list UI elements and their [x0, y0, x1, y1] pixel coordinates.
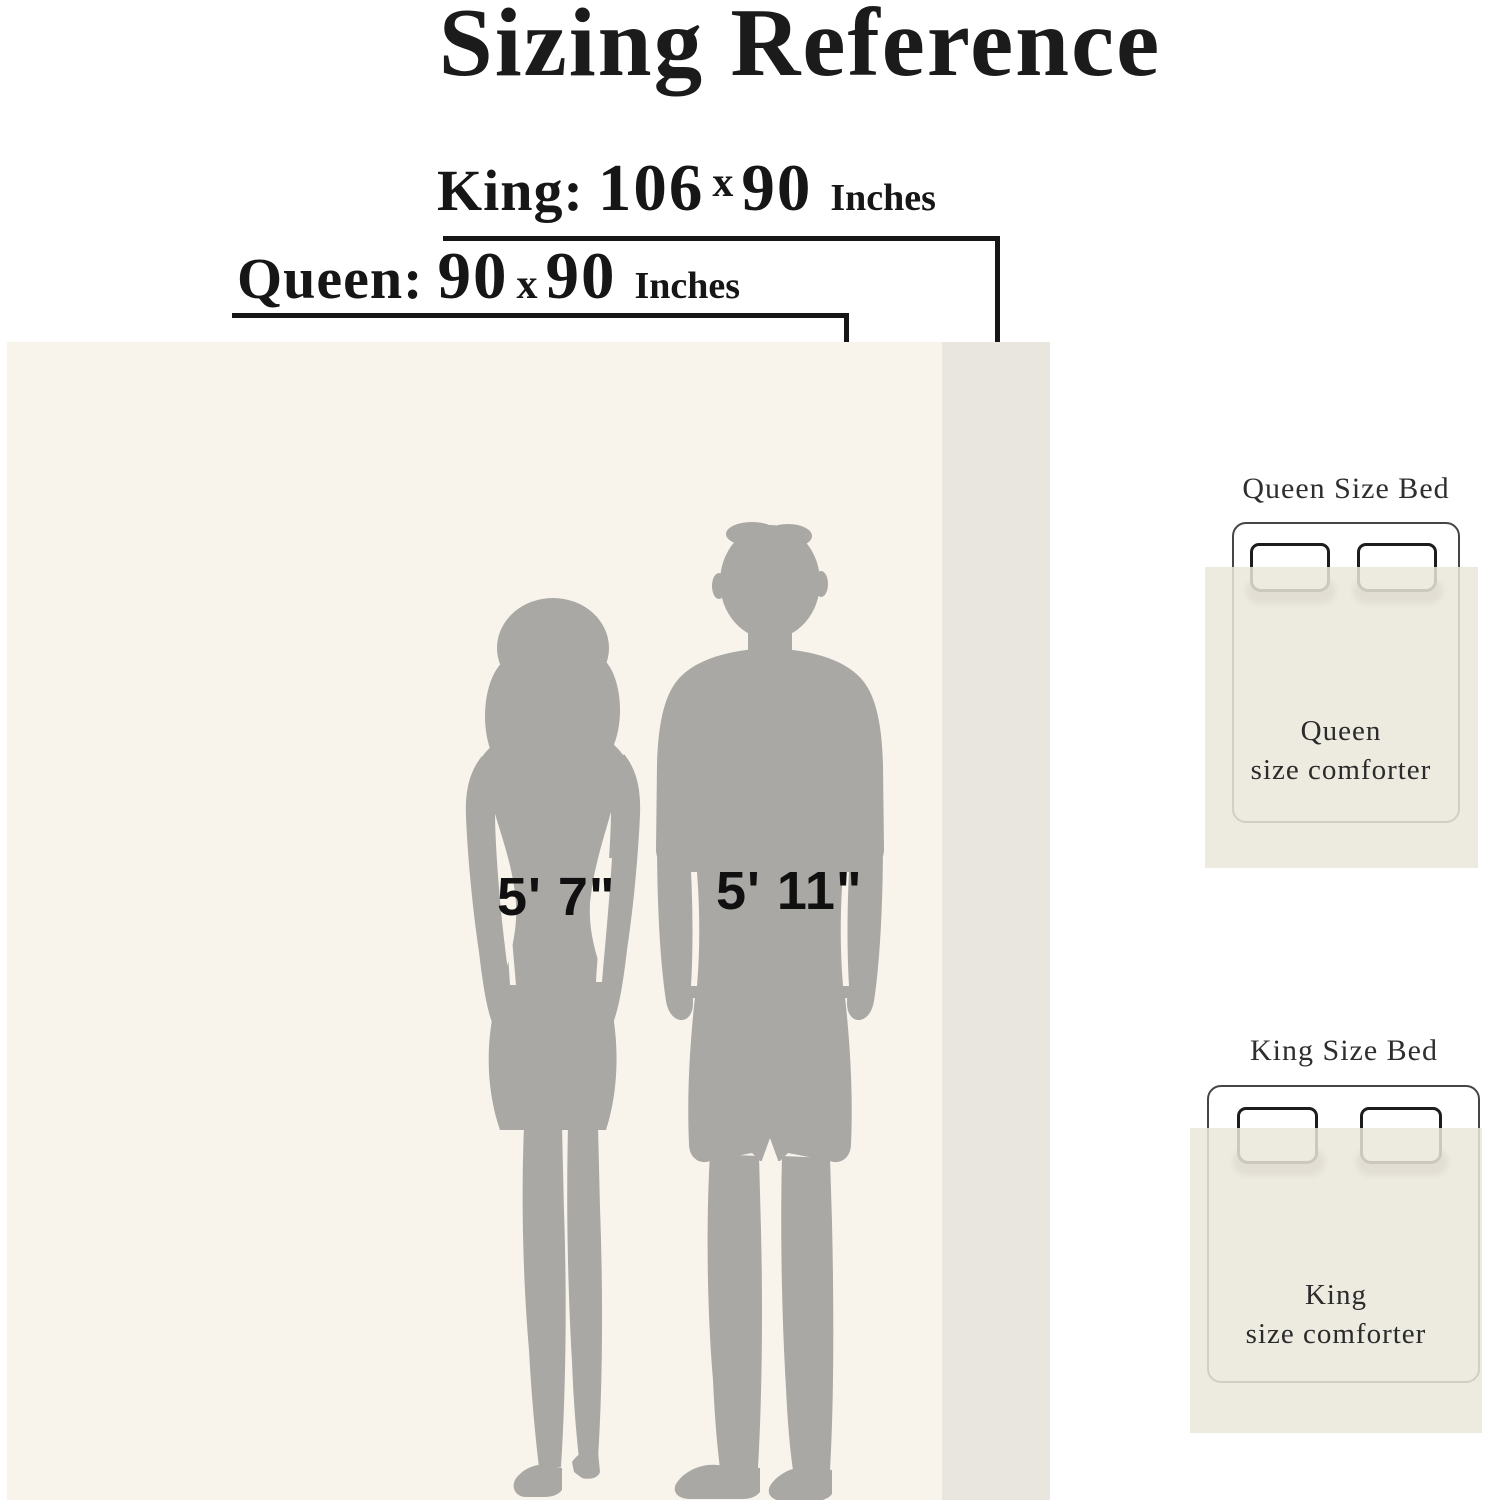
king-bracket-line	[443, 236, 1000, 241]
king-comforter-line2: size comforter	[1246, 1315, 1427, 1354]
king-bed-title: King Size Bed	[1250, 1034, 1438, 1068]
woman-silhouette	[466, 598, 640, 1497]
queen-size-name: Queen:	[237, 245, 423, 312]
man-height-label: 5' 11"	[716, 860, 863, 922]
queen-comforter-line2: size comforter	[1251, 751, 1432, 790]
king-size-name: King:	[437, 157, 584, 224]
king-multiply-sign: x	[712, 159, 733, 207]
king-height-value: 90	[741, 150, 812, 227]
man-silhouette	[656, 522, 884, 1500]
queen-comforter-line1: Queen	[1251, 712, 1432, 751]
queen-size-label: Queen: 90 x 90 Inches	[237, 238, 740, 315]
king-size-label: King: 106 x 90 Inches	[437, 150, 936, 227]
queen-width-value: 90	[437, 238, 508, 315]
king-unit-label: Inches	[830, 176, 936, 220]
queen-bracket-drop-line	[844, 313, 849, 344]
king-comforter-label: King size comforter	[1246, 1276, 1427, 1354]
queen-height-value: 90	[545, 238, 616, 315]
queen-multiply-sign: x	[516, 261, 537, 309]
king-bracket-drop-line	[995, 236, 1000, 344]
king-comforter-line1: King	[1246, 1276, 1427, 1315]
woman-height-label: 5' 7"	[497, 866, 616, 928]
queen-comforter-label: Queen size comforter	[1251, 712, 1432, 790]
people-silhouettes	[420, 520, 950, 1500]
king-width-value: 106	[598, 150, 705, 227]
king-comforter-extension-panel	[942, 342, 1050, 1500]
sizing-reference-infographic: Sizing Reference King: 106 x 90 Inches Q…	[0, 0, 1500, 1500]
queen-bracket-line	[232, 313, 849, 318]
page-title: Sizing Reference	[439, 0, 1161, 94]
queen-unit-label: Inches	[634, 264, 740, 308]
queen-bed-title: Queen Size Bed	[1242, 472, 1449, 506]
